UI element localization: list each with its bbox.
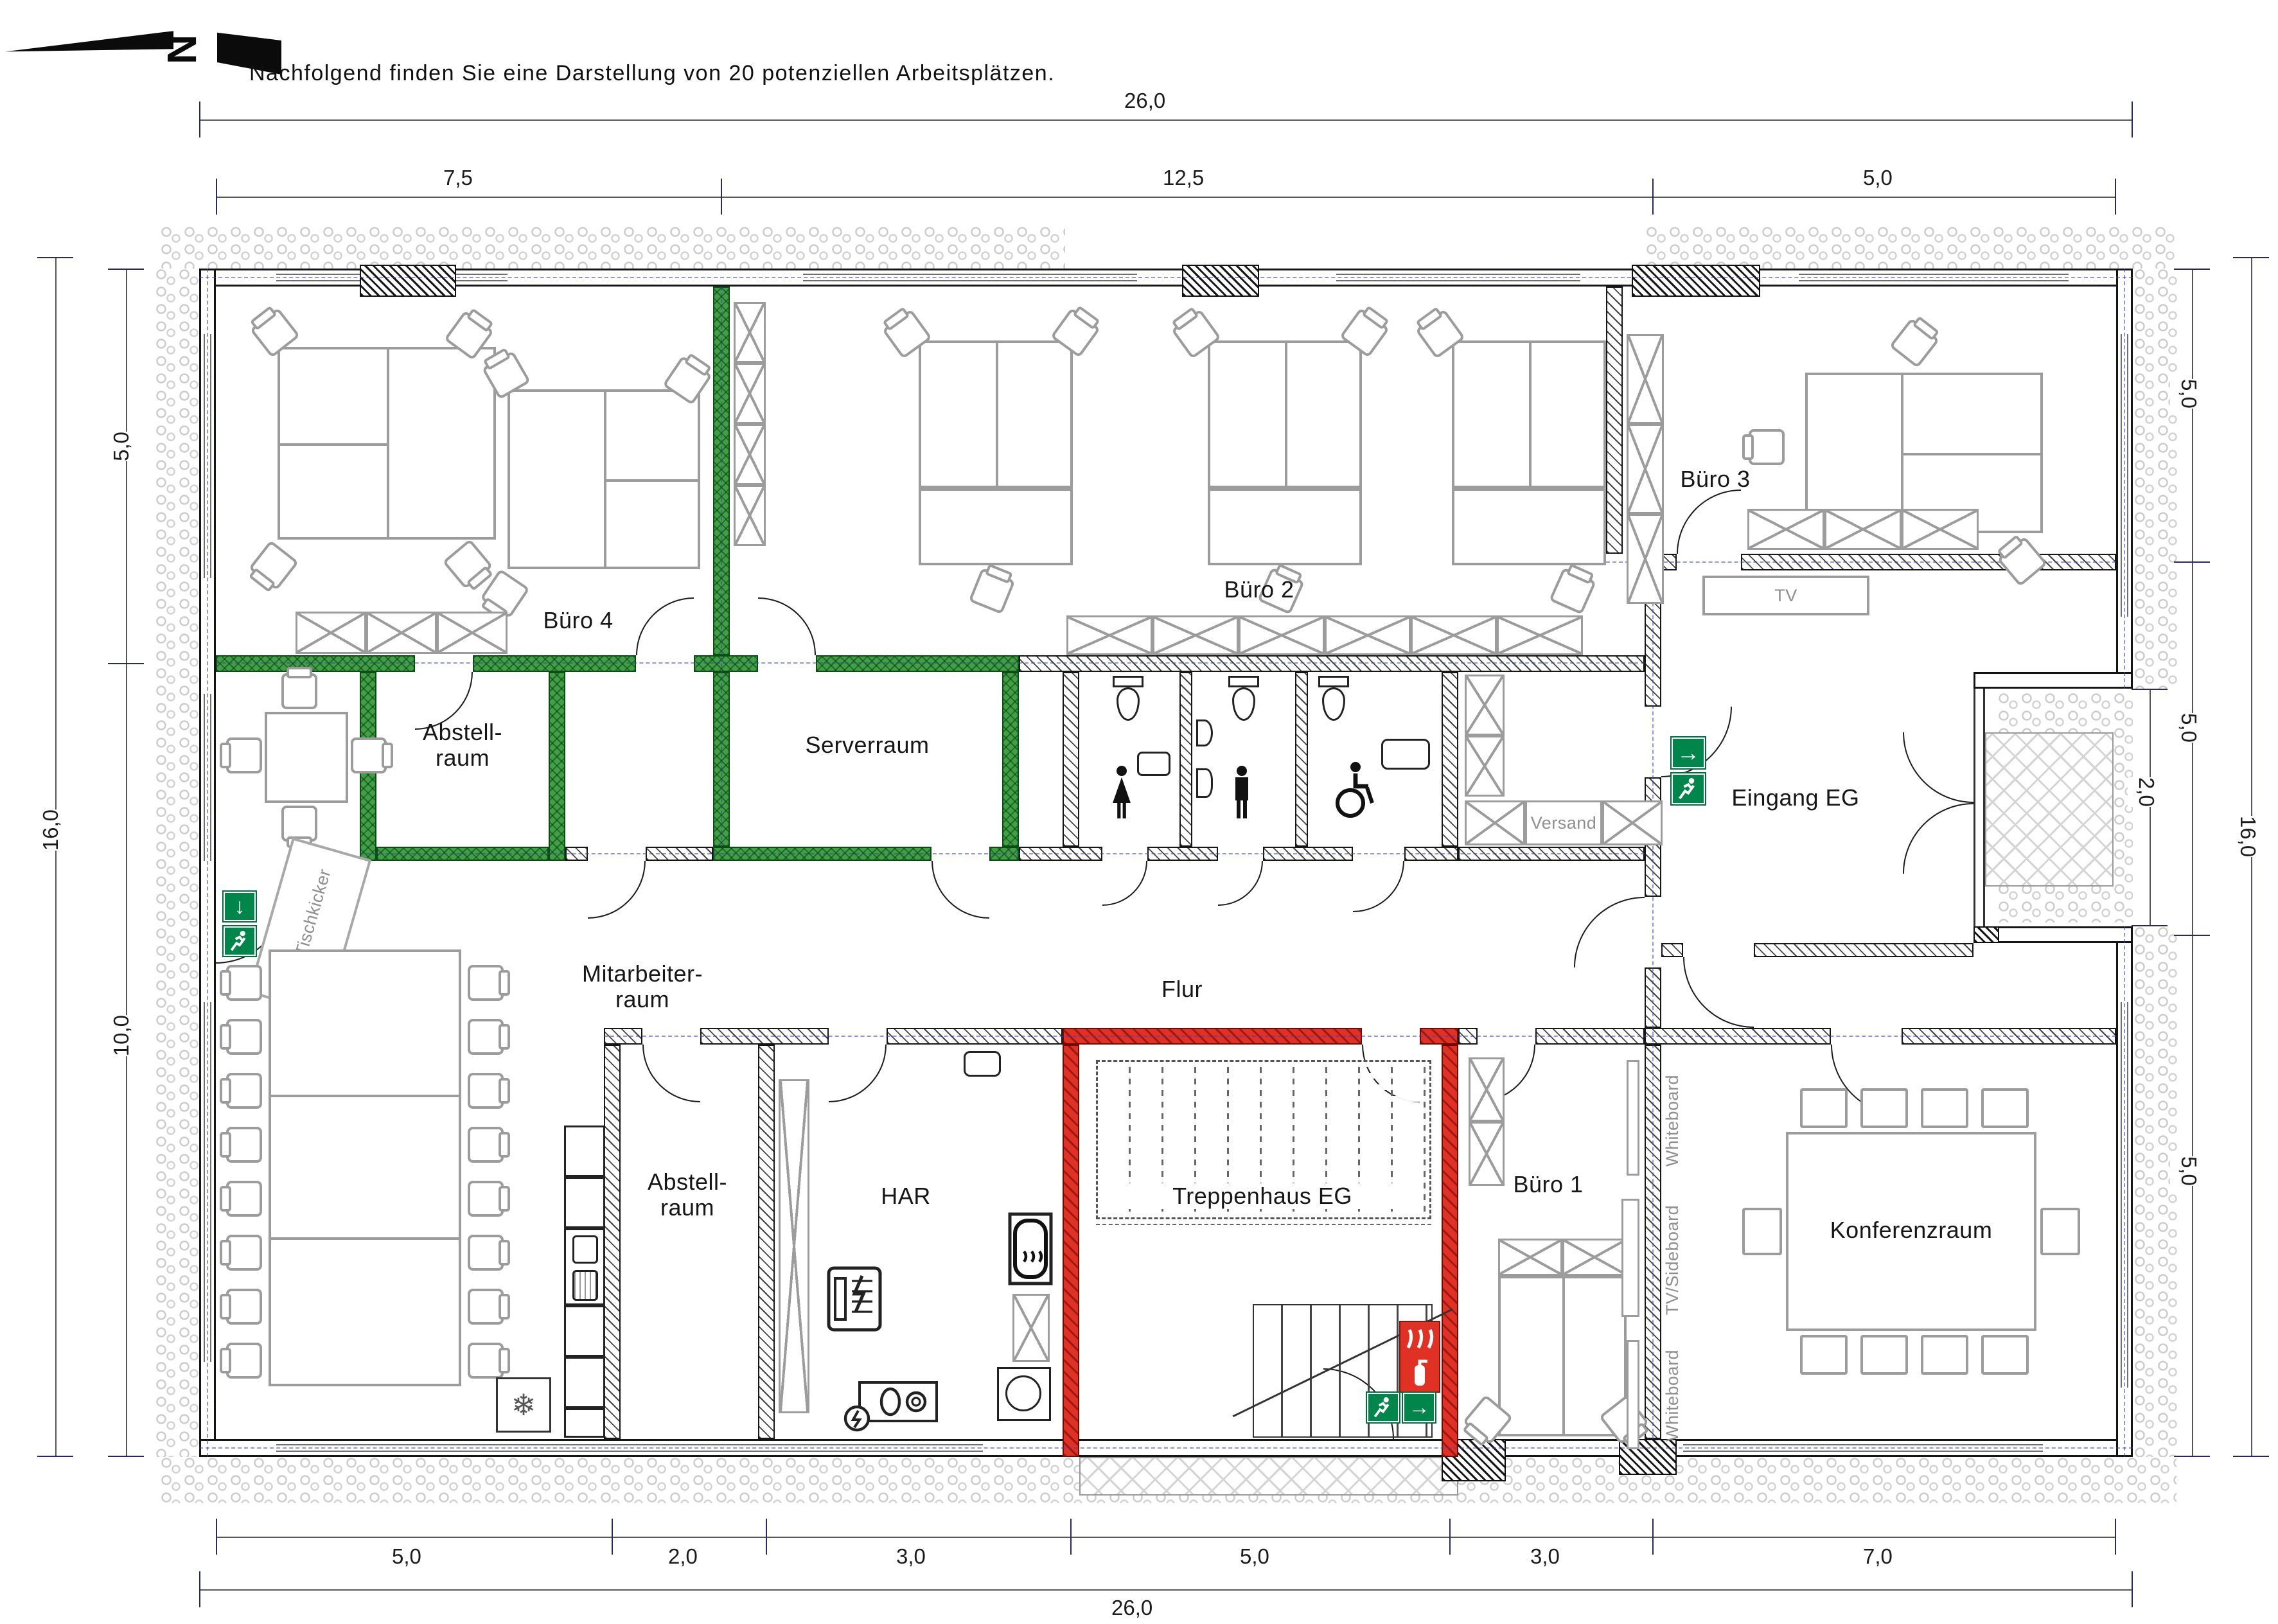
dim-bottom-seg-1: 5,0: [385, 1544, 428, 1569]
dim-right-seg-3: 2,0: [2128, 777, 2165, 807]
paving-bottom-walkway: [1079, 1457, 1458, 1496]
har-shelf: [1012, 1294, 1050, 1362]
room-label-serverraum: Serverraum: [771, 732, 964, 758]
storage-cabinet-column: [1627, 334, 1664, 424]
room-label-buero4: Büro 4: [508, 608, 649, 633]
storage-cabinet-row: [437, 612, 508, 654]
pier-top-3: [1632, 265, 1760, 297]
dim-tick: [1652, 179, 1654, 215]
storage-cabinet-row: [1497, 615, 1583, 655]
chair: [969, 568, 1016, 615]
chair: [468, 1181, 504, 1217]
chair: [1749, 429, 1785, 465]
staff-table: [269, 949, 461, 1386]
chair: [281, 673, 317, 709]
dim-tick: [2132, 925, 2168, 926]
toilet: [1113, 676, 1143, 687]
chair: [1997, 536, 2048, 587]
door-corridor: [588, 861, 646, 919]
room-label-buero2: Büro 2: [1188, 577, 1330, 603]
storage-cabinet-column: [734, 363, 766, 424]
boiler-icon: [842, 1375, 957, 1433]
door-har: [829, 1045, 887, 1102]
chair: [468, 1073, 504, 1109]
dim-tick: [1070, 1519, 1072, 1555]
wall-abstell-har: [758, 1045, 775, 1439]
chair: [1800, 1088, 1848, 1128]
exit-sign-mitarbeiter-arrow: ↓: [222, 890, 257, 922]
door-eingang-south: [1683, 957, 1754, 1028]
chair: [226, 1073, 262, 1109]
dim-tick: [199, 101, 200, 137]
exit-sign-trepp-runner: [1366, 1391, 1400, 1424]
dim-tick: [2233, 1456, 2269, 1457]
har-sink: [964, 1051, 1001, 1077]
dim-tick: [37, 1456, 73, 1457]
dim-top-seg-3: 5,0: [1857, 166, 1899, 190]
dim-tick: [2174, 1456, 2210, 1457]
kitchen-sink: [564, 1228, 605, 1305]
dim-left-seg-2: 10,0: [103, 1015, 140, 1056]
chair: [281, 806, 317, 842]
chair: [249, 540, 299, 591]
desk: [1452, 488, 1606, 565]
storage-cabinet-row: [1411, 615, 1497, 655]
north-arrow: N: [5, 17, 281, 81]
wall-green-h1-c: [694, 655, 758, 672]
exit-sign-trepp-arrow: →: [1402, 1391, 1436, 1424]
room-label-eingang: Eingang EG: [1690, 785, 1902, 811]
pinboard: [779, 1079, 809, 1413]
storage-cabinet-row: [366, 612, 437, 654]
room-label-treppenhaus: Treppenhaus EG: [1118, 1183, 1407, 1209]
chair: [226, 965, 262, 1001]
desk-group: [1452, 340, 1606, 488]
storage-cabinet-row: [1498, 1239, 1562, 1276]
storage-cabinet-column: [734, 302, 766, 363]
whiteboard-bottom: [1627, 1340, 1639, 1449]
storage-cabinet-row: [1562, 1239, 1627, 1276]
dim-left-seg-1: 5,0: [103, 432, 140, 461]
door-eingang-lower: [1574, 897, 1645, 967]
dim-tick: [108, 269, 144, 270]
north-arrow-shaft: [5, 28, 173, 73]
versand-shelf-row: [1465, 800, 1525, 845]
wall-entry-glass: [1973, 689, 1985, 926]
storage-cabinet-row: [1152, 615, 1239, 655]
storage-cabinet-row: [1239, 615, 1325, 655]
toilet: [1228, 676, 1259, 687]
dim-tick: [2233, 257, 2269, 258]
dim-tick: [2132, 689, 2168, 690]
north-label: N: [158, 35, 206, 64]
whiteboard-top: [1627, 1060, 1639, 1176]
dim-right-seg-1: 5,0: [2170, 379, 2207, 409]
pier-top-2: [1182, 265, 1259, 297]
washing-machine-icon: [997, 1367, 1051, 1421]
dim-line-right-segments: [2192, 269, 2193, 1457]
storage-cabinet-row: [1747, 509, 1824, 550]
dim-tick: [2174, 269, 2210, 270]
wall-eingang-south-b: [1754, 943, 1973, 957]
chair: [1549, 567, 1596, 615]
room-label-mitarbeiter: Mitarbeiter-raum: [546, 961, 739, 1013]
chair: [468, 1127, 504, 1163]
page-title: Nachfolgend finden Sie eine Darstellung …: [249, 61, 1055, 86]
chair: [226, 1235, 262, 1271]
wall-red-trepp-west: [1063, 1045, 1079, 1457]
chair: [443, 539, 493, 590]
door-wc-women: [1102, 861, 1147, 906]
room-label-buero3: Büro 3: [1645, 466, 1786, 492]
chair: [2040, 1208, 2080, 1255]
wall-green-h1-b: [473, 655, 636, 672]
wall-green-abstell-east: [549, 672, 565, 861]
wall-mitarbeiter-abstell: [604, 1045, 621, 1439]
dim-tick: [2132, 1571, 2133, 1607]
versand-shelf-row: [1602, 800, 1663, 845]
storage-cabinet-row: [296, 612, 366, 654]
tv-label: TV: [1702, 578, 1869, 613]
desk-group: [278, 347, 496, 540]
axis-v1: [721, 287, 722, 847]
kitchen-cabinet: [564, 1357, 605, 1408]
pier-top-1: [360, 265, 456, 297]
dim-tick: [766, 1519, 767, 1555]
kitchen-cabinet: [564, 1177, 605, 1228]
kitchen-cabinet: [564, 1125, 605, 1177]
exit-sign-eingang-runner: [1670, 772, 1706, 806]
axis-v4: [1652, 570, 1654, 1439]
chair: [226, 737, 262, 773]
chair: [468, 965, 504, 1001]
wall-eingang-south-a: [1661, 943, 1683, 957]
dim-line-top-total: [199, 119, 2133, 121]
door-buero3: [1677, 490, 1741, 554]
chair: [468, 1019, 504, 1055]
room-label-buero1: Büro 1: [1478, 1172, 1619, 1197]
stairs-landing-line: [1096, 1224, 1431, 1225]
versand-shelf-column: [1465, 675, 1505, 736]
dim-tick: [2174, 935, 2210, 936]
desk-group: [508, 389, 700, 569]
storage-cabinet-column: [734, 424, 766, 485]
axis-h3: [604, 1036, 2116, 1037]
axis-bottom: [199, 1447, 2133, 1449]
wall-wc-div-1: [1179, 672, 1192, 847]
sink: [1137, 752, 1170, 776]
dim-bottom-seg-6: 7,0: [1857, 1544, 1899, 1569]
dim-tick: [2174, 561, 2210, 563]
chair: [1742, 1208, 1782, 1255]
dim-tick: [1449, 1519, 1451, 1555]
dim-line-left-outer: [55, 257, 57, 1457]
axis-h1: [216, 662, 1645, 664]
toilet-bowl: [1232, 687, 1255, 721]
dim-bottom-seg-5: 3,0: [1524, 1544, 1566, 1569]
wall-wc-west: [1063, 672, 1079, 847]
axis-right-2: [2124, 926, 2125, 1457]
room-label-abstell-bottom: Abstell-raum: [617, 1169, 758, 1221]
axis-h2: [360, 853, 1645, 854]
electric-panel-icon: [824, 1260, 894, 1337]
exit-sign-eingang-arrow: →: [1670, 736, 1706, 770]
toilet: [1318, 676, 1349, 687]
room-label-har: HAR: [842, 1183, 970, 1209]
dim-right-seg-2: 5,0: [2170, 713, 2207, 743]
fridge-icon: ❄: [496, 1377, 551, 1433]
chair: [468, 1235, 504, 1271]
toilet-bowl: [1322, 687, 1345, 721]
desk-group: [1208, 340, 1362, 488]
chair: [1889, 318, 1940, 369]
chair: [226, 1019, 262, 1055]
gravel-right-upper: [2133, 269, 2179, 689]
axis-left: [207, 269, 208, 1457]
kitchen-cabinet: [564, 1408, 605, 1438]
water-heater-icon: [1006, 1210, 1055, 1287]
chair: [468, 1343, 504, 1379]
door-server: [932, 861, 989, 919]
door-abstell-bottom: [642, 1045, 700, 1102]
chair: [226, 1127, 262, 1163]
fire-extinguisher-icon: [1399, 1321, 1440, 1393]
pier-recess: [1973, 926, 1999, 943]
floor-plan-page: N Nachfolgend finden Sie eine Darstellun…: [0, 0, 2278, 1624]
dim-tick: [108, 1456, 144, 1457]
dim-line-right-recess: [2150, 689, 2151, 926]
chair: [1921, 1335, 1968, 1375]
dim-tick: [612, 1519, 613, 1555]
dim-bottom-total: 26,0: [1105, 1596, 1159, 1620]
storage-cabinet-column: [1469, 1057, 1505, 1122]
storage-cabinet-row: [1902, 509, 1979, 550]
dim-right-outer: 16,0: [2229, 816, 2266, 857]
chair: [226, 1289, 262, 1325]
wall-green-h1-d: [816, 655, 1019, 672]
door-wc-men: [1218, 861, 1263, 906]
tv-sideboard-strip: [1621, 1199, 1639, 1317]
gravel-left: [154, 269, 199, 1457]
axis-right: [2124, 269, 2125, 689]
tischkicker-label: Tischkicker: [292, 867, 335, 958]
chair: [1860, 1088, 1908, 1128]
room-label-konferenzraum: Konferenzraum: [1792, 1217, 2030, 1243]
storage-cabinet-row: [1325, 615, 1411, 655]
sink: [1381, 739, 1430, 770]
dim-line-bottom-segments: [216, 1537, 2116, 1538]
room-label-flur: Flur: [1124, 976, 1240, 1002]
gravel-right-lower: [2133, 926, 2179, 1457]
dim-right-seg-4: 5,0: [2170, 1156, 2207, 1186]
gravel-top-left: [159, 226, 1065, 269]
tv-sideboard-label: TV/Sideboard: [1663, 1192, 1682, 1327]
wall-red-trepp-east: [1442, 1045, 1458, 1457]
chair: [1921, 1088, 1968, 1128]
chair: [226, 1181, 262, 1217]
whiteboard-top-label: Whiteboard: [1663, 1063, 1682, 1178]
chair: [468, 1289, 504, 1325]
room-label-abstell-top: Abstell-raum: [398, 719, 527, 772]
whiteboard-bottom-label: Whiteboard: [1663, 1337, 1682, 1453]
dim-bottom-seg-4: 5,0: [1233, 1544, 1276, 1569]
chair: [1981, 1088, 2029, 1128]
door-buero2: [758, 597, 816, 655]
dim-line-bottom-total: [199, 1589, 2133, 1591]
dim-tick: [2115, 179, 2116, 215]
chair: [351, 737, 387, 773]
storage-cabinet-row: [1824, 509, 1902, 550]
dim-tick: [2115, 1519, 2116, 1555]
gravel-top-right: [1645, 226, 2178, 269]
desk-group: [919, 340, 1073, 488]
paving-entry: [1985, 732, 2114, 887]
dim-tick: [2132, 101, 2133, 137]
man-icon: [1227, 764, 1257, 824]
wall-green-server-east: [1002, 672, 1019, 847]
dim-tick: [1652, 1519, 1654, 1555]
wall-green-h1-a: [216, 655, 415, 672]
door-wc-accessible: [1353, 861, 1404, 912]
wall-wc-div-2: [1295, 672, 1308, 847]
break-table: [265, 712, 348, 803]
dim-tick: [216, 179, 217, 215]
toilet-bowl: [1117, 687, 1140, 721]
door-entry-leaf-b: [1903, 803, 1973, 874]
storage-cabinet-column: [1627, 514, 1664, 604]
door-entry-leaf-a: [1903, 732, 1973, 803]
dim-top-seg-2: 12,5: [1156, 166, 1210, 190]
versand-shelf-column: [1465, 736, 1505, 797]
chair: [1800, 1335, 1848, 1375]
exit-sign-mitarbeiter-runner: [222, 925, 257, 957]
desk: [1208, 488, 1362, 565]
storage-cabinet-column: [734, 485, 766, 546]
dim-tick: [37, 257, 73, 258]
storage-cabinet-row: [1066, 615, 1152, 655]
chair: [1860, 1335, 1908, 1375]
wall-recess-top: [1973, 672, 2133, 689]
versand-label: Versand: [1525, 804, 1602, 842]
sink: [1196, 768, 1213, 798]
wall-h1-east: [1019, 655, 1645, 672]
chair: [226, 1343, 262, 1379]
urinal: [1196, 719, 1213, 746]
wall-wc-east: [1442, 672, 1458, 847]
kitchen-cabinet: [564, 1305, 605, 1357]
dim-tick: [721, 179, 722, 215]
wheelchair-icon: [1327, 759, 1379, 821]
dim-tick: [216, 1519, 217, 1555]
dim-bottom-seg-3: 3,0: [890, 1544, 932, 1569]
woman-icon: [1106, 764, 1137, 822]
dim-line-top-segments: [216, 197, 2116, 198]
dim-bottom-seg-2: 2,0: [662, 1544, 704, 1569]
dim-top-seg-1: 7,5: [437, 166, 479, 190]
dim-tick: [108, 663, 144, 664]
chair: [1981, 1335, 2029, 1375]
dim-left-outer: 16,0: [32, 809, 69, 851]
wall-buero2-buero3: [1606, 287, 1623, 554]
dim-tick: [199, 1571, 200, 1607]
dim-top-total: 26,0: [1118, 89, 1172, 113]
axis-top: [199, 277, 2133, 278]
desk: [919, 488, 1073, 565]
